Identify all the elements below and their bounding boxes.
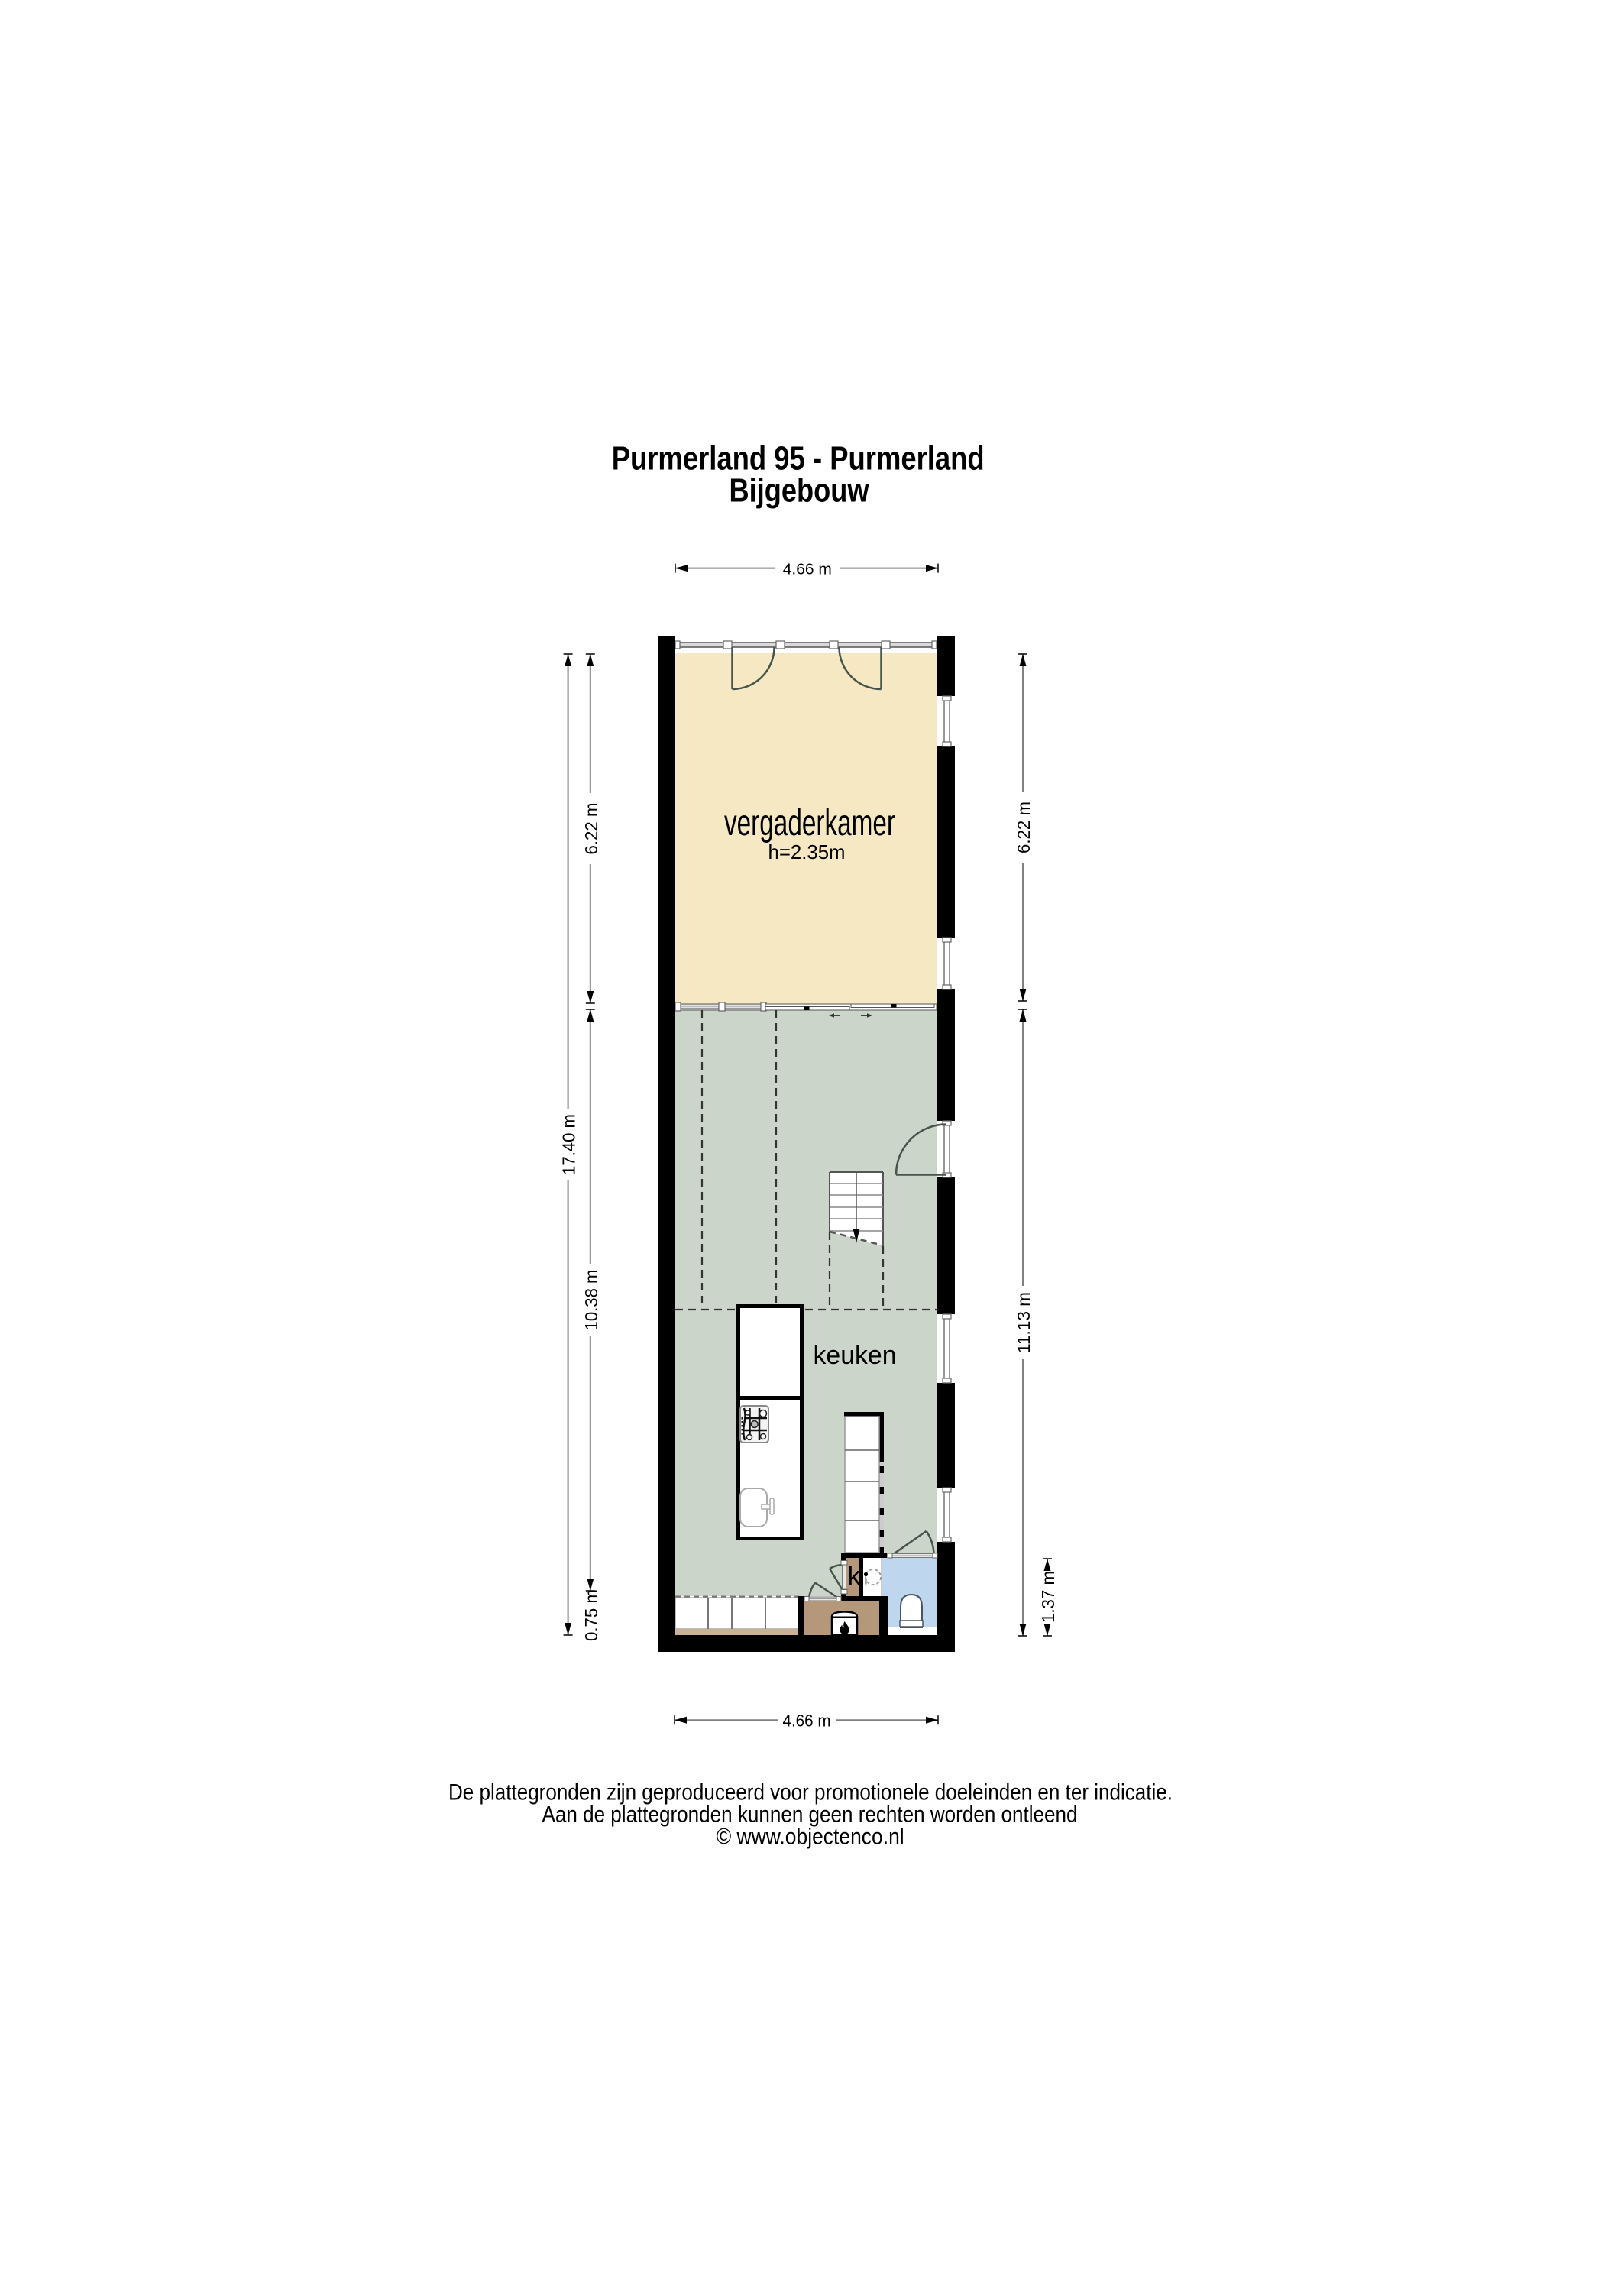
svg-text:k: k (848, 1562, 862, 1591)
svg-text:0.75 m: 0.75 m (581, 1589, 601, 1641)
svg-text:© www.objectenco.nl: © www.objectenco.nl (717, 1825, 904, 1850)
svg-text:6.22 m: 6.22 m (581, 803, 601, 855)
svg-text:keuken: keuken (814, 1341, 897, 1370)
svg-text:11.13 m: 11.13 m (1014, 1292, 1034, 1353)
svg-text:Aan de plattegronden kunnen ge: Aan de plattegronden kunnen geen rechten… (542, 1802, 1078, 1828)
svg-text:6.22 m: 6.22 m (1014, 801, 1034, 853)
svg-text:h=2.35m: h=2.35m (768, 840, 846, 863)
svg-text:4.66 m: 4.66 m (783, 562, 832, 578)
svg-text:10.38 m: 10.38 m (581, 1270, 601, 1331)
svg-text:Bijgebouw: Bijgebouw (730, 472, 870, 510)
svg-text:1.37 m: 1.37 m (1038, 1571, 1058, 1623)
svg-text:4.66 m: 4.66 m (783, 1711, 831, 1731)
svg-text:vergaderkamer: vergaderkamer (724, 803, 895, 844)
svg-text:17.40 m: 17.40 m (559, 1114, 579, 1175)
